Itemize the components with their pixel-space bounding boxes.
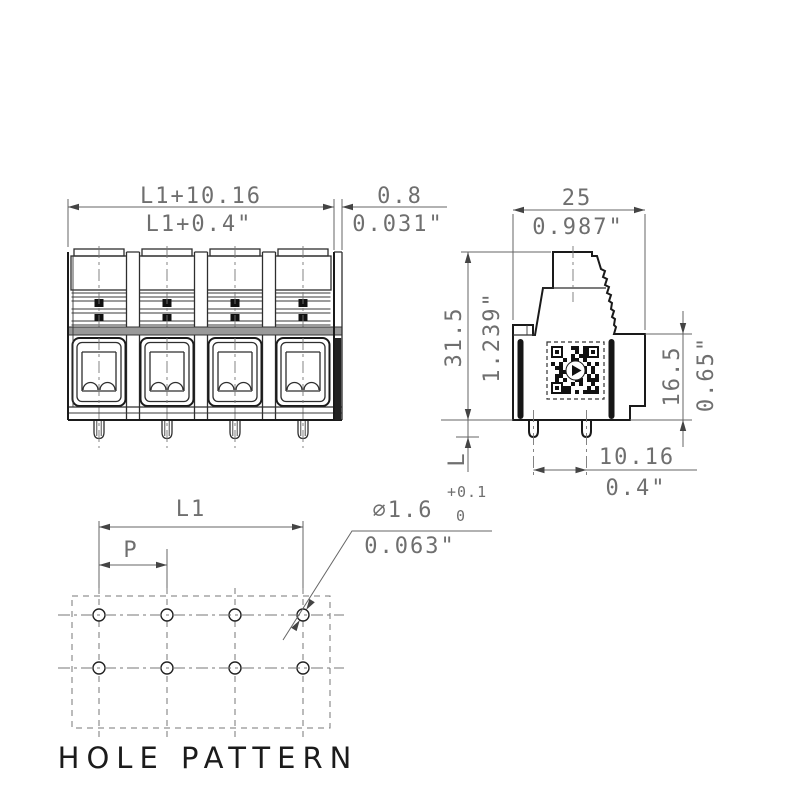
side-left-seam bbox=[518, 339, 524, 419]
qr-module bbox=[583, 350, 587, 354]
total-height-inch-label: 1.239" bbox=[480, 291, 505, 382]
qr-module bbox=[587, 362, 591, 366]
qr-module bbox=[583, 390, 587, 394]
qr-module bbox=[591, 370, 595, 374]
drawing-caption: HOLE PATTERN bbox=[58, 741, 359, 775]
side-body-outline bbox=[513, 252, 645, 420]
dim-pin-length-arrow bbox=[465, 437, 471, 448]
qr-module bbox=[583, 354, 587, 358]
dim-pin-length: L bbox=[441, 420, 513, 467]
end-plate-metric-label: 0.8 bbox=[377, 184, 423, 209]
qr-module bbox=[555, 378, 559, 382]
dim-hole-diameter: ⌀1.6 +0.1 0 0.063" bbox=[283, 483, 492, 640]
qr-module bbox=[575, 390, 579, 394]
qr-module bbox=[567, 386, 571, 390]
qr-module bbox=[559, 362, 563, 366]
qr-module bbox=[595, 378, 599, 382]
qr-module bbox=[591, 382, 595, 386]
side-view bbox=[513, 246, 645, 478]
qr-module bbox=[563, 390, 567, 394]
dim-pin-length-extension-lines bbox=[441, 420, 513, 437]
front-view bbox=[68, 246, 342, 448]
hole-grid bbox=[93, 588, 309, 740]
dim-pin-spacing: 10.16 0.4" bbox=[534, 445, 698, 501]
qr-module bbox=[571, 382, 575, 386]
qr-module bbox=[587, 386, 591, 390]
hole-diameter-inch-label: 0.063" bbox=[364, 534, 455, 559]
side-right-seam bbox=[609, 339, 615, 419]
pin-spacing-metric-label: 10.16 bbox=[599, 445, 675, 470]
qr-module bbox=[555, 366, 559, 370]
dim-front-width: L1+10.16 L1+0.4" 0.8 0.031" bbox=[68, 184, 447, 250]
qr-module bbox=[571, 354, 575, 358]
dim-hole-span: L1 P bbox=[99, 497, 303, 588]
qr-module bbox=[551, 362, 555, 366]
qr-finder-dot bbox=[555, 386, 559, 390]
terminal-block-drawing: L1+10.16 L1+0.4" 0.8 0.031" 25 0.987" 31… bbox=[0, 0, 800, 800]
qr-module bbox=[595, 386, 599, 390]
qr-module bbox=[587, 390, 591, 394]
qr-module bbox=[555, 374, 559, 378]
hole-span-label: L1 bbox=[176, 497, 207, 522]
qr-module bbox=[559, 374, 563, 378]
front-end-plate-fill bbox=[335, 338, 341, 420]
qr-module bbox=[575, 346, 579, 350]
qr-module bbox=[583, 358, 587, 362]
hole-pattern-boundary bbox=[72, 596, 330, 728]
qr-module bbox=[563, 358, 567, 362]
front-mid-band bbox=[68, 327, 342, 335]
hole-diameter-tol-plus: +0.1 bbox=[447, 483, 487, 501]
end-plate-inch-label: 0.031" bbox=[352, 212, 443, 237]
qr-module bbox=[579, 354, 583, 358]
qr-module bbox=[571, 346, 575, 350]
hole-diameter-metric-label: ⌀1.6 bbox=[373, 498, 434, 523]
qr-module bbox=[567, 390, 571, 394]
hole-diameter-tol-minus: 0 bbox=[456, 507, 466, 525]
qr-module bbox=[591, 366, 595, 370]
pin-length-label: L bbox=[445, 451, 470, 466]
qr-module bbox=[563, 378, 567, 382]
qr-finder-dot bbox=[555, 350, 559, 354]
front-width-metric-label: L1+10.16 bbox=[140, 184, 262, 209]
qr-module bbox=[591, 378, 595, 382]
qr-module bbox=[595, 362, 599, 366]
pin-spacing-inch-label: 0.4" bbox=[606, 476, 667, 501]
qr-module bbox=[559, 366, 563, 370]
pole-separator bbox=[127, 252, 140, 420]
front-view-poles bbox=[71, 246, 331, 448]
qr-module bbox=[595, 390, 599, 394]
front-width-inch-label: L1+0.4" bbox=[146, 212, 253, 237]
body-height-metric-label: 16.5 bbox=[660, 346, 685, 407]
total-height-metric-label: 31.5 bbox=[442, 307, 467, 368]
pole-separator bbox=[195, 252, 208, 420]
qr-module bbox=[595, 374, 599, 378]
depth-metric-label: 25 bbox=[562, 186, 593, 211]
qr-module bbox=[559, 370, 563, 374]
body-height-inch-label: 0.65" bbox=[694, 336, 719, 412]
qr-module bbox=[583, 346, 587, 350]
qr-module bbox=[587, 378, 591, 382]
qr-module bbox=[587, 374, 591, 378]
technical-drawing-page: L1+10.16 L1+0.4" 0.8 0.031" 25 0.987" 31… bbox=[0, 0, 800, 800]
hole-pitch-label: P bbox=[123, 538, 138, 563]
pole-separator bbox=[263, 252, 276, 420]
qr-module bbox=[591, 390, 595, 394]
qr-finder-dot bbox=[591, 350, 595, 354]
qr-module bbox=[575, 350, 579, 354]
qr-module bbox=[563, 386, 567, 390]
depth-inch-label: 0.987" bbox=[532, 215, 623, 240]
qr-module bbox=[579, 382, 583, 386]
